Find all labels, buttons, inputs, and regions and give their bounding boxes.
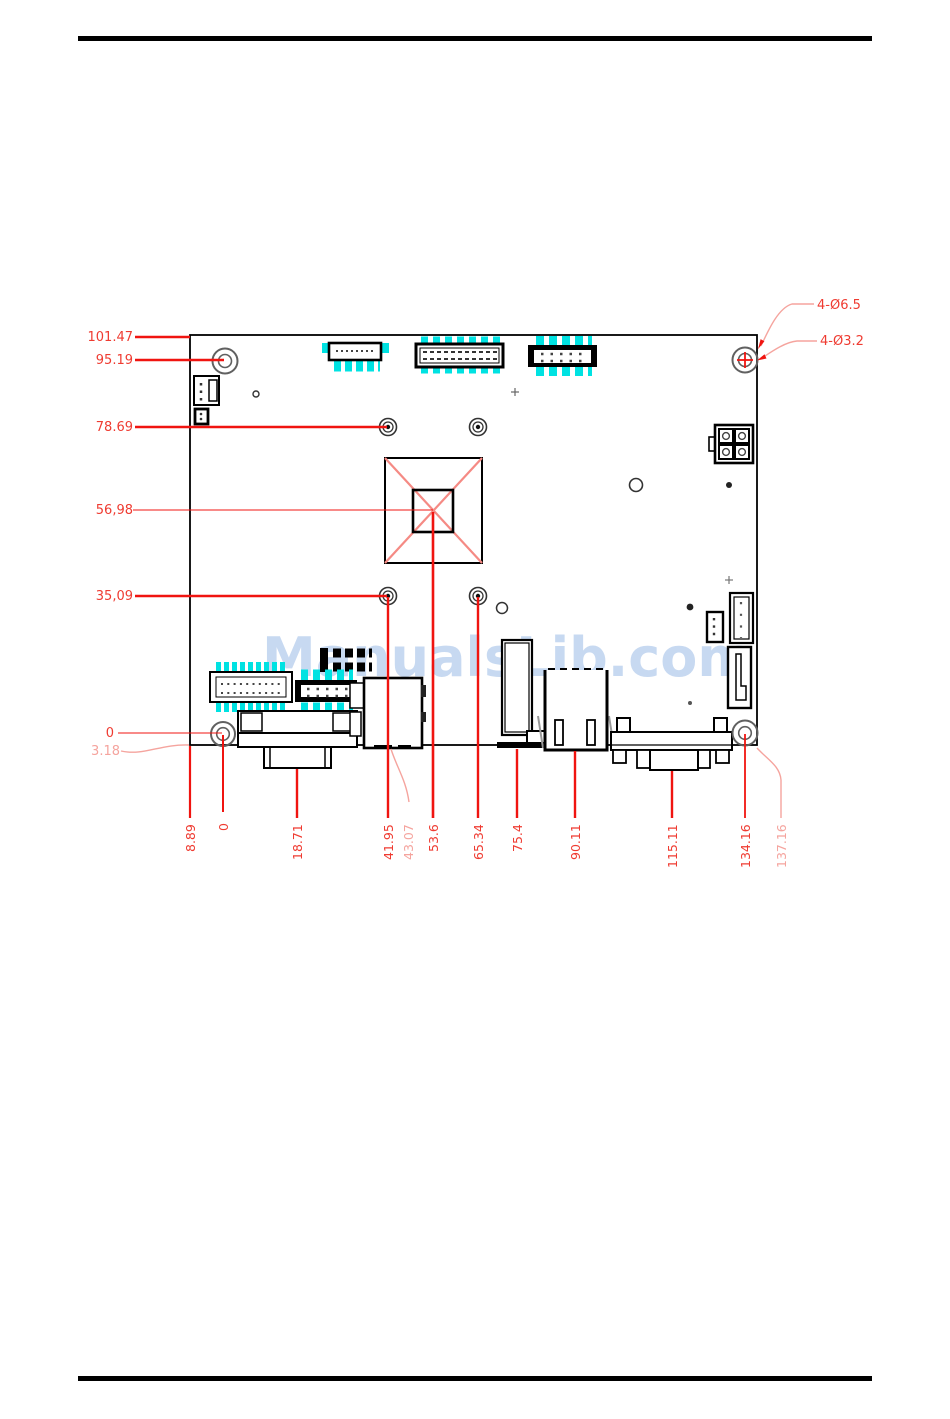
dim-left-35-09: 35,09 xyxy=(60,589,133,604)
dim-bottom-137-16: 137.16 xyxy=(774,824,789,868)
dim-left-3-18: 3.18 xyxy=(60,744,120,759)
dim-right-4-dia6-5: 4-Ø6.5 xyxy=(817,298,861,313)
dim-left-95-19: 95.19 xyxy=(60,353,133,368)
header-3pin-left xyxy=(194,376,219,405)
dim-bottom-0: 0 xyxy=(216,823,231,831)
board-drawing xyxy=(0,0,950,900)
leader-137-16 xyxy=(757,748,781,818)
bottom-rule xyxy=(78,1376,872,1381)
dim-bottom-75-4: 75.4 xyxy=(510,824,525,852)
header-4pin-right xyxy=(730,593,753,643)
lvds-connector xyxy=(416,341,503,369)
box-header-2x5-bottom xyxy=(295,675,357,708)
dot-right-3 xyxy=(688,701,692,705)
dim-bottom-43-07: 43.07 xyxy=(401,824,416,860)
cross-marker-2 xyxy=(725,576,733,584)
cross-marker-1 xyxy=(511,388,519,396)
hole-mid-right xyxy=(630,479,643,492)
dim-bottom-65-34: 65.34 xyxy=(471,824,486,860)
leader-3-18 xyxy=(121,745,189,752)
dot-right-2 xyxy=(687,604,694,611)
dim-bottom-53-6: 53.6 xyxy=(426,824,441,852)
dim-left-101-47: 101.47 xyxy=(60,330,133,345)
manual-page: { "watermark": { "text": "ManualsLib.com… xyxy=(0,0,950,1419)
dim-left-56-98: 56,98 xyxy=(60,503,133,518)
dim-bottom-18-71: 18.71 xyxy=(290,824,305,860)
via-hole xyxy=(253,391,259,397)
dim-bottom-134-16: 134.16 xyxy=(738,824,753,868)
db15-connector xyxy=(611,718,732,770)
ffc-connector-small xyxy=(322,343,389,366)
leader-arrowheads xyxy=(757,339,767,360)
dim-bottom-41-95: 41.95 xyxy=(381,824,396,860)
power-connector-4pin xyxy=(709,425,753,463)
dim-right-4-dia3-2: 4-Ø3.2 xyxy=(820,334,864,349)
leader-dia-6-5 xyxy=(761,304,814,346)
leader-dia-3-2 xyxy=(762,341,817,358)
box-header-2x5-top xyxy=(528,341,597,371)
dim-bottom-115-11: 115.11 xyxy=(665,824,680,868)
box-header-large xyxy=(210,667,292,707)
leader-43-07 xyxy=(391,749,409,802)
dim-bottom-90-11: 90.11 xyxy=(568,824,583,860)
lan-connector xyxy=(538,669,614,750)
vga-connector xyxy=(238,711,357,768)
dim-left-0: 0 xyxy=(60,726,114,741)
dim-left-78-69: 78.69 xyxy=(60,420,133,435)
hole-mid-center xyxy=(497,603,508,614)
dim-bottom-8-89: 8.89 xyxy=(183,824,198,852)
dot-right-1 xyxy=(726,482,732,488)
header-3pin-right xyxy=(707,612,723,642)
smt-connector-black-pads xyxy=(320,648,372,672)
jumper-2pin xyxy=(195,409,208,424)
mounting-hole-top-right xyxy=(733,348,758,373)
hole-center-cross xyxy=(737,352,753,368)
sata-connector xyxy=(728,647,751,708)
